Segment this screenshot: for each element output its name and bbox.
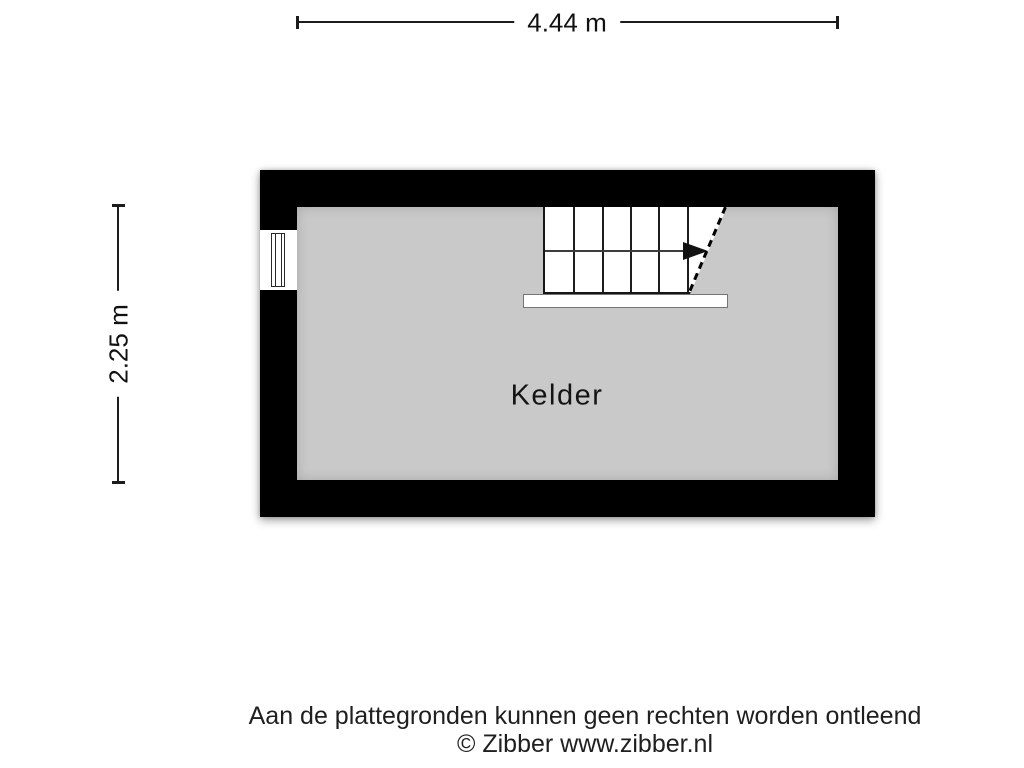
stair-walk-line <box>545 250 685 252</box>
room-label: Kelder <box>511 380 604 413</box>
footer: Aan de plattegronden kunnen geen rechten… <box>249 702 922 758</box>
window-frame <box>271 233 285 287</box>
window <box>260 230 297 290</box>
floorplan-exterior-wall: Kelder <box>260 170 875 517</box>
height-dimension-label: 2.25 m <box>104 291 135 397</box>
width-dimension-label: 4.44 m <box>514 8 620 39</box>
footer-credit: © Zibber www.zibber.nl <box>249 730 922 758</box>
footer-disclaimer: Aan de plattegronden kunnen geen rechten… <box>249 702 922 730</box>
stair-landing <box>523 294 728 308</box>
width-dimension-tick-left <box>296 16 299 29</box>
width-dimension-tick-right <box>836 16 839 29</box>
height-dimension-tick-top <box>112 204 125 207</box>
height-dimension-tick-bottom <box>112 481 125 484</box>
